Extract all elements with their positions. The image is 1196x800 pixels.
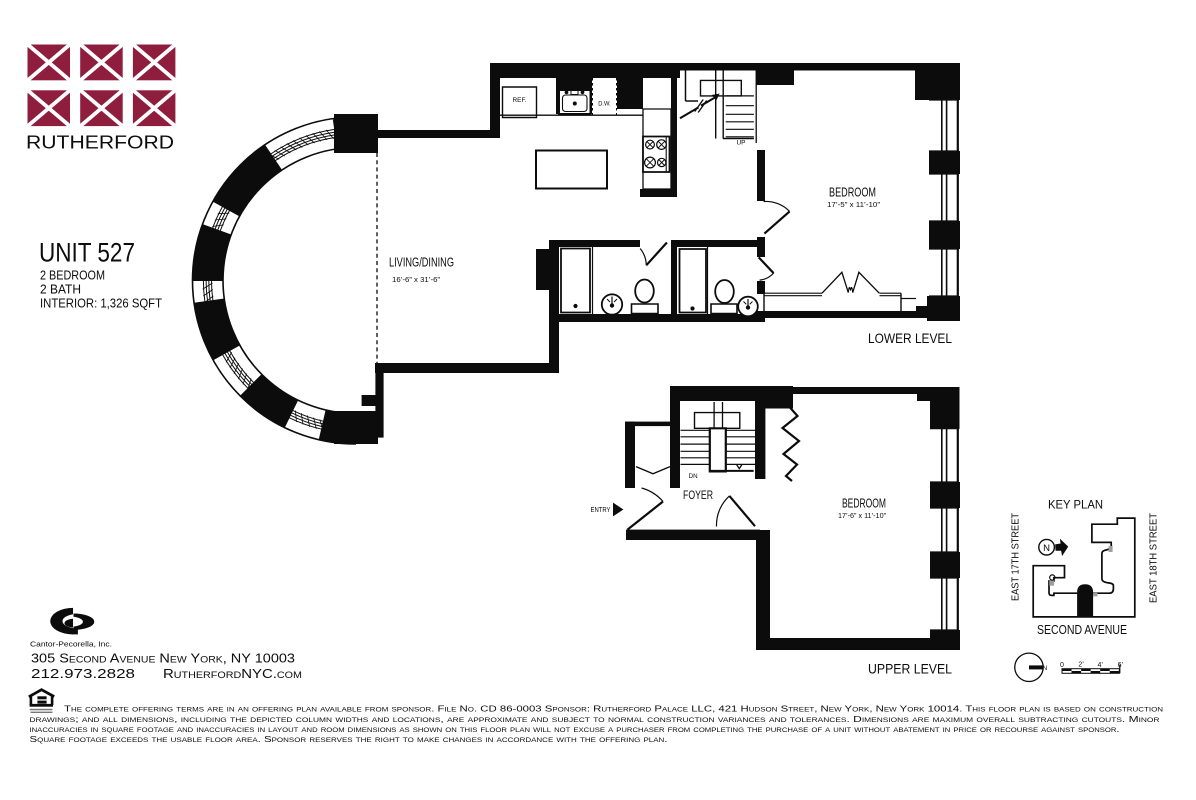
svg-text:305 Second Avenue New York, NY: 305 Second Avenue New York, NY 10003: [31, 652, 295, 666]
svg-text:SECOND AVENUE: SECOND AVENUE: [1037, 623, 1127, 637]
svg-text:REF.: REF.: [513, 98, 527, 104]
svg-text:N: N: [1043, 543, 1050, 554]
svg-text:16’-6” x 31’-6”: 16’-6” x 31’-6”: [392, 275, 441, 284]
svg-text:The complete offering terms ar: The complete offering terms are in an of…: [64, 704, 1163, 714]
svg-text:LIVING/DINING: LIVING/DINING: [389, 255, 454, 270]
svg-text:LOWER LEVEL: LOWER LEVEL: [868, 330, 952, 346]
svg-text:inaccuracies in square footage: inaccuracies in square footage and inacc…: [30, 724, 1120, 734]
svg-text:KEY PLAN: KEY PLAN: [1048, 498, 1103, 512]
svg-text:BEDROOM: BEDROOM: [829, 185, 876, 200]
svg-text:UP: UP: [737, 141, 746, 147]
svg-text:BEDROOM: BEDROOM: [842, 496, 886, 511]
svg-text:RutherfordNYC.com: RutherfordNYC.com: [163, 667, 302, 681]
svg-text:drawings; and all dimensions,: drawings; and all dimensions, including …: [30, 714, 1161, 724]
svg-text:2 BATH: 2 BATH: [40, 282, 81, 297]
svg-text:212.973.2828: 212.973.2828: [31, 667, 135, 681]
svg-text:INTERIOR: 1,326 SQFT: INTERIOR: 1,326 SQFT: [40, 296, 162, 311]
svg-text:4’: 4’: [1097, 662, 1103, 669]
svg-text:17’-5” x 11’-10”: 17’-5” x 11’-10”: [827, 200, 881, 209]
svg-text:D.W.: D.W.: [598, 102, 611, 108]
svg-text:6’: 6’: [1118, 662, 1124, 669]
svg-text:2’: 2’: [1078, 662, 1084, 669]
svg-text:DN: DN: [689, 474, 698, 480]
svg-text:UNIT 527: UNIT 527: [39, 238, 135, 268]
svg-text:2 BEDROOM: 2 BEDROOM: [40, 268, 105, 283]
svg-text:ENTRY: ENTRY: [591, 505, 611, 514]
svg-text:Square footage exceeds the usa: Square footage exceeds the usable floor …: [30, 734, 668, 744]
svg-text:EAST 18TH STREET: EAST 18TH STREET: [1148, 512, 1160, 603]
svg-text:N: N: [1042, 665, 1047, 672]
svg-text:EAST 17TH STREET: EAST 17TH STREET: [1010, 512, 1022, 601]
svg-text:Cantor-Pecorella, Inc.: Cantor-Pecorella, Inc.: [30, 640, 112, 649]
svg-text:UPPER LEVEL: UPPER LEVEL: [868, 661, 952, 677]
svg-text:0: 0: [1060, 662, 1064, 669]
svg-text:RUTHERFORD: RUTHERFORD: [26, 133, 174, 153]
svg-text:17’-6” x 11’-10”: 17’-6” x 11’-10”: [838, 511, 886, 520]
svg-text:FOYER: FOYER: [683, 490, 713, 502]
